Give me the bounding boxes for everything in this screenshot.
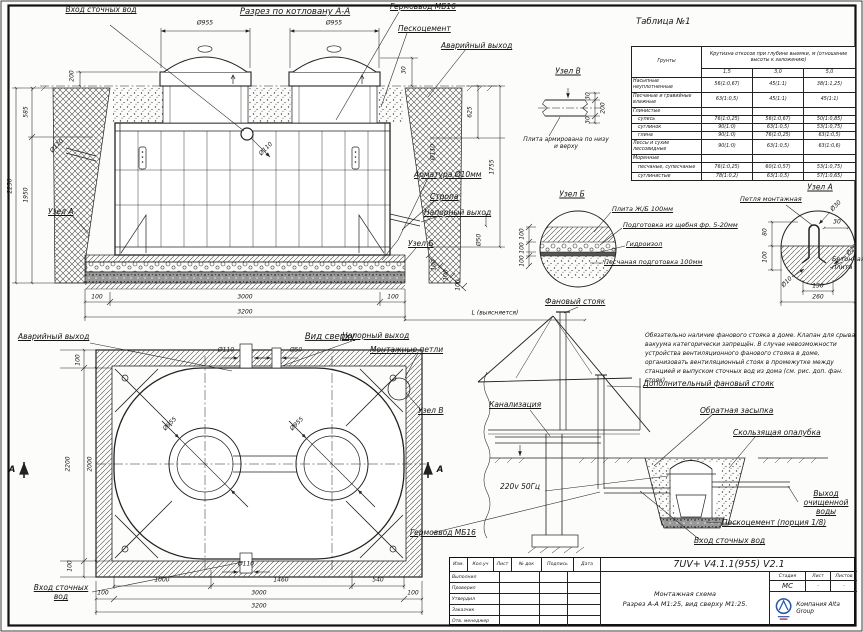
section-emergency-label: Аварийный выход (441, 41, 512, 50)
titleblock-col-izm: Изм. (450, 558, 468, 572)
titleblock-empty-cell (568, 616, 600, 626)
plan-dim-100-left: 100 (97, 589, 108, 596)
dim-30: 30 (400, 66, 407, 74)
table-cell: 76(1:0,25) (753, 132, 804, 140)
titleblock-empty-cell (568, 605, 600, 616)
plan-dim-110-bottom: Ø110 (238, 560, 254, 567)
titleblock-empty-cell (500, 605, 540, 616)
uzel-v-dim-30-bottom: 30 (584, 116, 591, 124)
house-formwork-label: Скользящая опалубка (733, 428, 821, 437)
dim-1950: 1950 (22, 187, 29, 202)
table-cell: 53(1:0,75) (804, 124, 856, 132)
dim-100-stack-3: 100 (454, 279, 461, 290)
plan-section-marker-right: А (437, 465, 444, 475)
scheme-title-line1: Монтажная схема (654, 589, 716, 599)
titleblock-row-vypolnil: Выполнил (450, 572, 500, 583)
plan-dim-3200: 3200 (251, 602, 266, 609)
table-cell: 45(1:1) (753, 78, 804, 93)
table-cell: 90(1:0) (702, 140, 753, 155)
titleblock-logo-cell: Компания Alta Group (770, 592, 857, 626)
table-depth: 3,0 (753, 69, 804, 78)
plan-inlet-label: Вход сточных вод (26, 583, 96, 601)
plan-dim-2000: 2000 (86, 456, 93, 471)
table-row: суглинок90(1:0)63(1:0,5)53(1:0,75) (632, 124, 856, 132)
titleblock-empty-cell (500, 594, 540, 605)
table-cell: суглинистые (632, 173, 702, 181)
dim-1755: 1755 (488, 159, 495, 174)
plan-dim-100-top: 100 (74, 354, 81, 365)
section-armature-label: Арматура Ø10мм (414, 170, 481, 179)
titleblock-stage-col: Листов (831, 572, 857, 581)
house-power-label: 220v 50Гц (500, 482, 540, 491)
titleblock-empty-cell (540, 583, 568, 594)
uzel-b-gravel-label: Подготовка из щебня фр. 5-20мм (623, 222, 738, 230)
table-cell: 56(1:0,67) (753, 116, 804, 124)
plan-dim-1460: 1460 (273, 576, 288, 583)
dim-955-1: Ø955 (197, 19, 213, 26)
alta-group-logo (774, 597, 793, 621)
dim-110-right: Ø110 (429, 144, 436, 160)
dim-100-stack-2: 100 (442, 269, 449, 280)
titleblock-row-manager: Отв. менеджер (450, 616, 500, 626)
uzel-b-waterproof-label: Гидроизол (626, 241, 662, 249)
plan-dim-50-top: Ø50 (290, 346, 302, 353)
dim-200: 200 (68, 70, 75, 81)
table-header-main: Крутизна откосов при глубине выемки, м (… (702, 47, 856, 69)
uzel-a-loop-label: Петля монтажная (740, 196, 802, 204)
table-row: супесь76(1:0,25)56(1:0,67)50(1:0,85) (632, 116, 856, 124)
uzel-b-sand-label: Песчаная подготовка 100мм (604, 259, 702, 267)
table-cell: 45(1:1) (804, 93, 856, 108)
table-row: песчаные, супесчаные76(1:0,25)60(1:0,57)… (632, 163, 856, 173)
dim-955-2: Ø955 (326, 19, 342, 26)
table-cell: Моренные (632, 155, 702, 163)
notes-text: Обязательно наличие фанового стояка в до… (645, 331, 855, 385)
titleblock-col-koluch: Кол.уч (468, 558, 494, 572)
titleblock-col-podpis: Подпись (542, 558, 574, 572)
titleblock-stage-value: – (831, 581, 857, 592)
plan-uzel-v-ref: Узел В (418, 406, 444, 415)
table-cell: 50(1:0,85) (804, 116, 856, 124)
table-row: Насыпные неуплотненные56(1:0,67)45(1:1)3… (632, 78, 856, 93)
uzel-v-dim-30-top: 30 (584, 92, 591, 100)
table-cell: Песчаные и гравийные влажные (632, 93, 702, 108)
uzel-b-title: Узел Б (559, 190, 585, 199)
uzel-a-dim-80: 80 (761, 228, 768, 236)
table-cell: песчаные, супесчаные (632, 163, 702, 173)
uzel-a-concrete-label: Бетонная плита (832, 256, 863, 272)
titleblock-stage-value: МС (770, 581, 806, 592)
table-cell: 63(1:0,5) (702, 93, 753, 108)
uzel-b-dim-100-2: 100 (518, 242, 525, 253)
titleblock-stage-col: Лист (806, 572, 831, 581)
table-cell: 63(1:0,5) (753, 124, 804, 132)
house-sewer-label: Канализация (489, 400, 541, 409)
table-cell (753, 108, 804, 116)
dim-100-bottom-left: 100 (91, 293, 102, 300)
section-germovvod-label: Гермоввод МБ16 (390, 2, 456, 11)
titleblock-empty-cell (500, 583, 540, 594)
titleblock-row-utverdil: Утвердил (450, 594, 500, 605)
table-cell: Глинистые (632, 108, 702, 116)
dim-L: L (выясняется) (472, 309, 519, 316)
plan-dim-3000: 3000 (251, 589, 266, 596)
uzel-a-dim-130: 130 (812, 282, 823, 289)
plan-germovvod-label: Гермоввод МБ16 (410, 528, 476, 537)
titleblock-row-proveril: Проверил (450, 583, 500, 594)
table-cell (804, 155, 856, 163)
plan-dim-540: 540 (372, 576, 383, 583)
section-uzel-a-ref: Узел А (48, 207, 73, 216)
titleblock-empty-cell (540, 605, 568, 616)
table-row: Песчаные и гравийные влажные63(1:0,5)45(… (632, 93, 856, 108)
dim-3200: 3200 (237, 308, 252, 315)
uzel-a-dim-30: 30 (833, 218, 841, 225)
uzel-a-dim-100: 100 (761, 251, 768, 262)
table-cell: 63(1:0,6) (804, 140, 856, 155)
table-cell: супесь (632, 116, 702, 124)
uzel-a-dim-260: 260 (812, 293, 823, 300)
titleblock-row-zakazchik: Заказчик (450, 605, 500, 616)
table-cell (702, 155, 753, 163)
section-pressure-label: Напорный выход (424, 208, 491, 217)
table-cell: 90(1:0) (702, 124, 753, 132)
uzel-v-note: Плита армирована по низу и верху (522, 136, 610, 150)
section-peskocement-label: Пескоцемент (398, 24, 451, 33)
plan-section-marker-left: А (9, 465, 16, 475)
section-stropa-label: Стропа (430, 192, 458, 201)
plan-dim-100-bottom: 100 (66, 560, 73, 571)
titleblock-empty-cell (540, 594, 568, 605)
table-cell: 76(1:0,25) (702, 116, 753, 124)
titleblock-col-list: Лист (494, 558, 512, 572)
table-cell: суглинок (632, 124, 702, 132)
house-backfill-label: Обратная засыпка (700, 406, 773, 415)
table-header-soil: Грунты (632, 47, 702, 78)
house-inlet-label: Вход сточных вод (694, 536, 765, 545)
uzel-v-dim-200: 200 (599, 102, 606, 113)
table-cell: Лессы и сухие лессовидные (632, 140, 702, 155)
table-cell: 63(1:0,5) (753, 173, 804, 181)
section-title: Разрез по котловану А-А (240, 7, 350, 17)
table-cell: Насыпные неуплотненные (632, 78, 702, 93)
titleblock-empty-cell (500, 572, 540, 583)
titleblock-empty-cell (540, 572, 568, 583)
table-cell: 56(1:0,67) (702, 78, 753, 93)
plan-dim-100-right: 100 (407, 589, 418, 596)
table-cell: глина (632, 132, 702, 140)
table-cell: 45(1:1) (753, 93, 804, 108)
plan-dim-1000: 1000 (154, 576, 169, 583)
table-depth: 1,5 (702, 69, 753, 78)
uzel-a-title: Узел А (807, 183, 832, 192)
house-outlet-label: Выход очищенной воды (796, 489, 856, 516)
section-uzel-b-ref: Узел Б (408, 239, 434, 248)
table-cell: 57(1:0,65) (804, 173, 856, 181)
table-depth: 5,0 (804, 69, 856, 78)
titleblock-empty-cell (500, 616, 540, 626)
uzel-b-slab-label: Плита Ж/Б 100мм (612, 206, 673, 214)
titleblock-empty-cell (540, 616, 568, 626)
plan-view-linework (24, 341, 600, 592)
uzel-v-title: Узел В (555, 67, 581, 76)
table-cell (702, 108, 753, 116)
slope-table: Грунты Крутизна откосов при глубине выем… (631, 46, 856, 181)
table-row: Лессы и сухие лессовидные90(1:0)63(1:0,5… (632, 140, 856, 155)
table-cell (804, 108, 856, 116)
table-cell (753, 155, 804, 163)
table-row: Моренные (632, 155, 856, 163)
table-row: глина90(1:0)76(1:0,25)63(1:0,5) (632, 132, 856, 140)
uzel-b-dim-100-1: 100 (518, 228, 525, 239)
table-cell: 53(1:0,75) (804, 163, 856, 173)
titleblock-empty-cell (568, 583, 600, 594)
house-peskocement-label: Пескоцемент (порция 1/8) (722, 518, 826, 527)
titleblock-stage-col: Стадия (770, 572, 806, 581)
titleblock-col-ndok: № док (512, 558, 542, 572)
table-cell: 38(1:1,25) (804, 78, 856, 93)
uzel-b-dim-100-3: 100 (518, 255, 525, 266)
plan-emergency-label: Аварийный выход (18, 332, 89, 341)
table-cell: 63(1:0,5) (753, 140, 804, 155)
dim-3000: 3000 (237, 293, 252, 300)
house-vent-label: Фановый стояк (545, 297, 605, 306)
dim-100-bottom-right: 100 (387, 293, 398, 300)
table-header-row: Грунты Крутизна откосов при глубине выем… (632, 47, 856, 69)
table-cell: 63(1:0,5) (804, 132, 856, 140)
titleblock-stage-value: – (806, 581, 831, 592)
titleblock-scheme-cell: Монтажная схема Разрез А-А М1:25, вид св… (600, 572, 770, 626)
title-block: Изм. Кол.уч Лист № док Подпись Дата 7UV+… (449, 557, 855, 625)
table-caption: Таблица №1 (636, 17, 691, 27)
plan-dim-2200: 2200 (64, 456, 71, 471)
company-name: Компания Alta Group (796, 602, 857, 616)
plan-dim-110-top: Ø110 (218, 346, 234, 353)
titleblock-empty-cell (568, 594, 600, 605)
dim-50: Ø50 (475, 234, 482, 246)
table-cell: 76(1:0,25) (702, 163, 753, 173)
section-inlet-label: Вход сточных вод (62, 5, 140, 14)
plan-pressure-label: Напорный выход (342, 331, 409, 340)
dim-100-stack-1: 100 (430, 259, 437, 270)
titleblock-empty-cell (568, 572, 600, 583)
dim-625: 625 (466, 106, 473, 117)
plan-loops-label: Монтажные петли (370, 345, 443, 354)
dim-2250: 2250 (6, 178, 13, 193)
titleblock-col-data: Дата (574, 558, 600, 572)
table-cell: 78(1:0,2) (702, 173, 753, 181)
dim-585: 585 (22, 106, 29, 117)
scheme-title-line2: Разрез А-А М1:25, вид сверху М1:25. (623, 599, 748, 609)
table-cell: 90(1:0) (702, 132, 753, 140)
table-cell: 60(1:0,57) (753, 163, 804, 173)
titleblock-doc-code: 7UV+ V4.1.1(955) V2.1 (600, 558, 857, 572)
table-row: Глинистые (632, 108, 856, 116)
uzel-b-linework (526, 211, 625, 287)
table-row: суглинистые78(1:0,2)63(1:0,5)57(1:0,65) (632, 173, 856, 181)
